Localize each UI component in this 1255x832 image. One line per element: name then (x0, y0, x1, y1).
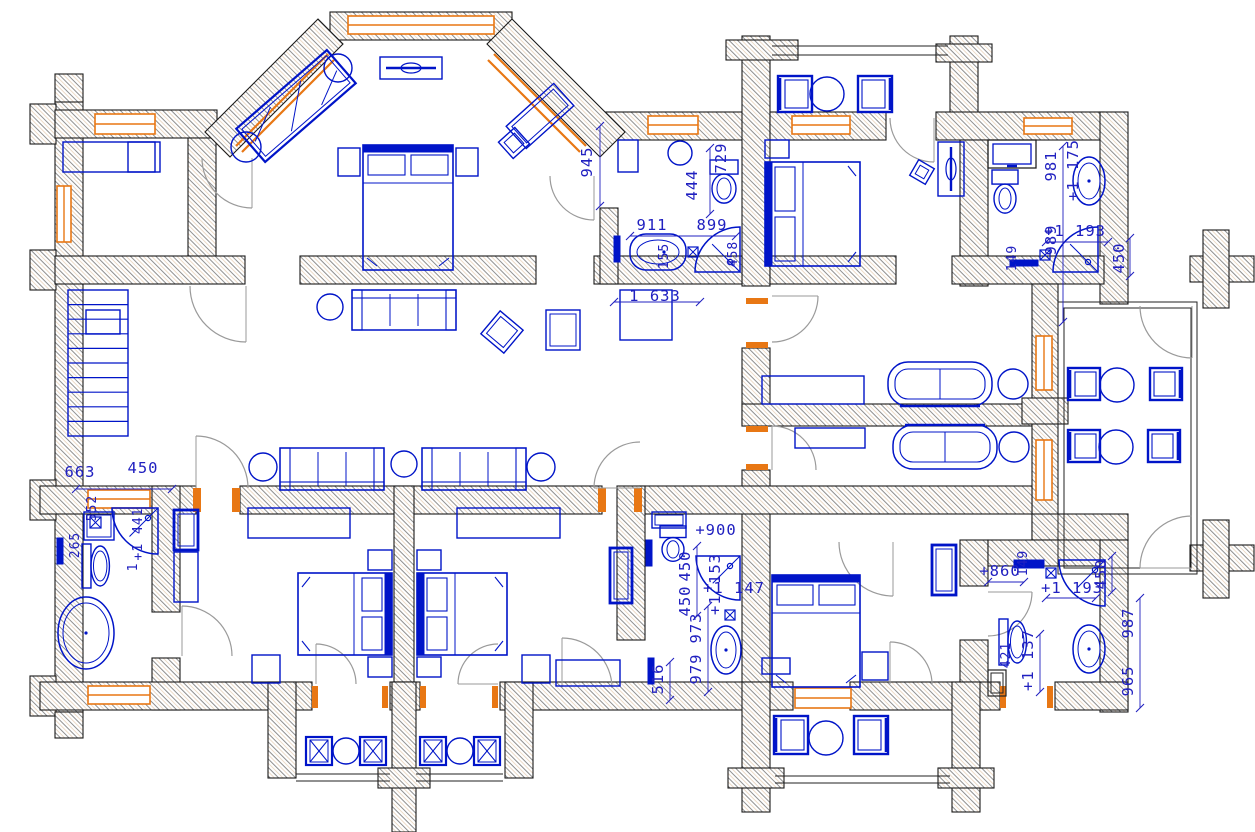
dimension-label: 663 (65, 463, 96, 481)
wall-segment (728, 768, 784, 788)
dimension-label: 421 (999, 642, 1014, 668)
sink (988, 140, 1036, 168)
window (57, 186, 71, 242)
side-table (999, 432, 1029, 462)
nightstand (368, 550, 392, 570)
window-jamb (232, 488, 240, 512)
wardrobe (174, 510, 198, 550)
chair (1068, 430, 1100, 462)
door-arc (594, 442, 640, 488)
double-bed (765, 162, 860, 266)
wall-segment (392, 682, 416, 832)
master-bed (363, 145, 453, 270)
dimension-label: 450 (1110, 243, 1128, 274)
dimension-label: +900 (695, 521, 736, 539)
window-jamb (746, 426, 768, 432)
basin (668, 141, 692, 165)
nightstand (338, 148, 360, 176)
chair (1150, 368, 1182, 400)
stair-landing (86, 310, 120, 334)
double-bed (298, 573, 392, 655)
chair (778, 76, 812, 112)
door-arc (562, 638, 612, 688)
door-arc (1140, 516, 1192, 568)
wall-segment (640, 486, 1032, 514)
dimension-line (693, 542, 701, 620)
door-arc (839, 542, 893, 596)
dimension-label: 911 (637, 216, 668, 234)
nightstand (368, 657, 392, 677)
armchair (474, 737, 500, 765)
balcony-table (810, 77, 844, 111)
window (348, 16, 494, 34)
stool (317, 294, 343, 320)
window-jamb (746, 342, 768, 348)
terrace-table (1099, 430, 1133, 464)
nightstand (417, 657, 441, 677)
window (95, 114, 155, 134)
sofa (280, 448, 384, 490)
wall-segment (726, 40, 798, 60)
dimension-label: 149 (1005, 245, 1020, 271)
chair (854, 716, 888, 754)
door-arc (772, 296, 818, 342)
armchair (420, 737, 446, 765)
dimension-label: 1 633 (629, 287, 681, 305)
dimension-label: 552 (85, 495, 100, 521)
wall-segment (55, 256, 245, 284)
toilet (992, 170, 1018, 213)
wall-segment (505, 682, 533, 778)
wall-segment (30, 104, 56, 144)
balcony-table (447, 738, 473, 764)
chair (858, 76, 892, 112)
wall-segment (1203, 520, 1229, 598)
side-table (527, 453, 555, 481)
wall-segment (936, 112, 1104, 140)
window-jamb (1047, 686, 1053, 708)
wardrobe (932, 545, 956, 595)
door-arc (890, 642, 932, 684)
balcony-table (809, 721, 843, 755)
wall-segment (268, 682, 296, 778)
wall-segment (394, 486, 414, 682)
dimension-label: 945 (578, 147, 596, 178)
bathtub (1073, 625, 1105, 673)
wall-segment (55, 74, 83, 102)
nightstand (417, 550, 441, 570)
window (88, 686, 150, 704)
armchair (306, 737, 332, 765)
window (1024, 118, 1072, 134)
stool (910, 160, 935, 185)
dimension-label: +860 (979, 562, 1020, 580)
towel-rail (57, 538, 63, 564)
door-arc (316, 644, 356, 684)
window (1036, 336, 1052, 390)
dimension-label: 965 (1119, 666, 1137, 697)
dimension-label: +1 175 (1064, 139, 1082, 201)
wall-segment (938, 768, 994, 788)
curved-sofa (888, 362, 992, 406)
desk-chair (498, 127, 529, 158)
dimension-label: +1 147 (703, 579, 765, 597)
wall-segment (742, 682, 770, 812)
dimension-label: 458 (726, 241, 741, 267)
dimension-label: 450 (676, 551, 694, 582)
wall-segment (1055, 682, 1128, 710)
dimension-label: 973 (687, 613, 705, 644)
dimension-label: 516 (649, 664, 667, 695)
nightstand (456, 148, 478, 176)
wall-segment (55, 712, 83, 738)
curved-sofa (893, 425, 997, 469)
vanity (618, 140, 638, 172)
wall-segment (1032, 514, 1128, 540)
window-jamb (312, 686, 318, 708)
dimension-label: 450 (676, 586, 694, 617)
wall-segment (936, 44, 992, 62)
chair (774, 716, 808, 754)
window-jamb (382, 686, 388, 708)
wall-mirror (380, 57, 442, 79)
door-arc (550, 176, 594, 220)
wall-segment (205, 19, 343, 157)
dimension-label: 450 (128, 459, 159, 477)
armchair (481, 311, 523, 353)
chair (1148, 430, 1180, 462)
dimension-label: 987 (1119, 608, 1137, 639)
dimension-label: 979 (687, 654, 705, 685)
door-arc (890, 118, 934, 162)
wall-segment (30, 250, 56, 290)
floor-plan: 9454447299118991554581 633+1 175981989+1… (0, 0, 1255, 832)
wall-segment (770, 256, 896, 284)
stool (252, 655, 280, 683)
window (792, 116, 850, 134)
sofa (422, 448, 526, 490)
towel-rail (614, 236, 620, 262)
dimension-label: 450 (1092, 559, 1110, 590)
window-jamb (598, 488, 606, 512)
dimension-label: 1 (126, 563, 141, 572)
door-arc (182, 606, 232, 656)
dimension-label: +1 441 (131, 508, 146, 561)
window-jamb (746, 298, 768, 304)
window-jamb (420, 686, 426, 708)
sideboard (762, 376, 864, 404)
dimension-label: +1 193 (1044, 222, 1106, 240)
wall-segment (188, 138, 216, 258)
dimension-label: 265 (68, 532, 83, 558)
window (795, 688, 851, 708)
chair (1068, 368, 1100, 400)
dimension-label: 729 (712, 143, 730, 174)
wall-segment (952, 682, 980, 812)
door-arc (190, 286, 246, 342)
stool (522, 655, 550, 683)
door-arc (196, 436, 248, 488)
door-arc (458, 644, 498, 684)
dimension-label: 155 (657, 243, 672, 269)
stool (862, 652, 888, 680)
dimension-label: 444 (683, 170, 701, 201)
window (1036, 440, 1052, 500)
window-jamb (193, 488, 201, 512)
wall-segment (1022, 398, 1068, 424)
floor-drain (725, 610, 735, 620)
wall-segment (742, 404, 1032, 426)
wall-segment (487, 19, 625, 157)
side-table (546, 310, 580, 350)
door-arc (1140, 306, 1192, 358)
dimension-label: 899 (697, 216, 728, 234)
sideboard (795, 428, 865, 448)
dimension-line (1036, 630, 1044, 696)
window (648, 116, 698, 134)
armchair (360, 737, 386, 765)
double-bed (772, 575, 860, 687)
side-table (391, 451, 417, 477)
plant (324, 54, 352, 82)
window-jamb (492, 686, 498, 708)
dimension-line (1136, 594, 1144, 712)
wall-segment (378, 768, 430, 788)
towel-rail (646, 540, 652, 566)
window-jamb (634, 488, 642, 512)
toilet (82, 544, 109, 588)
side-table (249, 453, 277, 481)
dimension-label: 149 (1016, 550, 1031, 576)
dimension-label: 981 (1042, 151, 1060, 182)
wall-segment (1203, 230, 1229, 308)
sofa (352, 290, 456, 330)
dimension-label: +1 137 (1019, 629, 1037, 691)
window-jamb (746, 464, 768, 470)
side-table (998, 369, 1028, 399)
terrace-table (1100, 368, 1134, 402)
floor-plan-canvas: 9454447299118991554581 633+1 175981989+1… (0, 0, 1255, 832)
floor-drain (1046, 568, 1056, 578)
bathtub (711, 626, 741, 674)
balcony-table (333, 738, 359, 764)
double-bed (417, 573, 507, 655)
